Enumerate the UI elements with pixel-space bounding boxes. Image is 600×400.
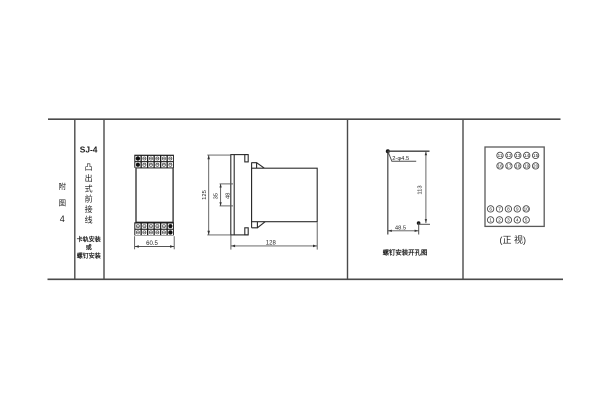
svg-text:6: 6 bbox=[489, 207, 492, 212]
svg-text:4: 4 bbox=[516, 218, 519, 223]
svg-text:20: 20 bbox=[533, 164, 539, 169]
svg-text:128: 128 bbox=[266, 240, 277, 246]
svg-text:60.5: 60.5 bbox=[146, 241, 158, 247]
svg-text:1: 1 bbox=[489, 218, 492, 223]
svg-text:凸: 凸 bbox=[85, 163, 93, 172]
svg-text:19: 19 bbox=[524, 164, 530, 169]
svg-text:13: 13 bbox=[515, 153, 521, 158]
svg-text:5: 5 bbox=[525, 218, 528, 223]
svg-text:18: 18 bbox=[515, 164, 521, 169]
svg-text:前: 前 bbox=[85, 194, 93, 204]
svg-text:125: 125 bbox=[202, 190, 208, 200]
svg-text:(正 视): (正 视) bbox=[500, 234, 527, 245]
svg-text:16: 16 bbox=[497, 164, 503, 169]
svg-text:SJ-4: SJ-4 bbox=[80, 145, 98, 155]
svg-text:3: 3 bbox=[507, 218, 510, 223]
svg-text:卡轨安装: 卡轨安装 bbox=[77, 236, 101, 244]
svg-text:线: 线 bbox=[85, 214, 93, 224]
svg-text:9: 9 bbox=[516, 207, 519, 212]
svg-text:接: 接 bbox=[85, 204, 93, 214]
svg-text:48: 48 bbox=[225, 193, 231, 199]
svg-text:15: 15 bbox=[533, 153, 539, 158]
svg-text:113: 113 bbox=[418, 185, 424, 194]
svg-text:8: 8 bbox=[507, 207, 510, 212]
svg-text:14: 14 bbox=[524, 153, 530, 158]
svg-text:或: 或 bbox=[86, 244, 92, 252]
svg-text:式: 式 bbox=[85, 183, 93, 193]
svg-text:4: 4 bbox=[60, 214, 65, 224]
svg-text:附: 附 bbox=[59, 182, 67, 191]
svg-text:出: 出 bbox=[85, 173, 93, 183]
svg-text:48.5: 48.5 bbox=[395, 225, 406, 231]
svg-text:螺钉安装开孔图: 螺钉安装开孔图 bbox=[383, 248, 428, 257]
svg-text:17: 17 bbox=[506, 164, 512, 169]
svg-text:螺钉安装: 螺钉安装 bbox=[77, 252, 101, 260]
svg-text:图: 图 bbox=[59, 198, 67, 207]
svg-text:7: 7 bbox=[498, 207, 501, 212]
svg-text:12: 12 bbox=[506, 153, 512, 158]
svg-text:2: 2 bbox=[498, 218, 501, 223]
svg-text:11: 11 bbox=[498, 153, 503, 158]
svg-text:2-φ4.5: 2-φ4.5 bbox=[392, 156, 409, 162]
svg-text:10: 10 bbox=[524, 207, 530, 212]
svg-text:35: 35 bbox=[213, 193, 219, 199]
